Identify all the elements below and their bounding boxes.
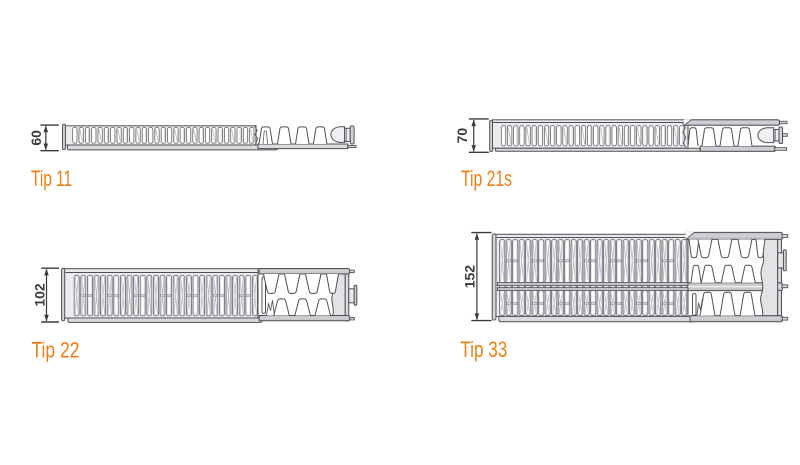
svg-text:Tip 21s: Tip 21s bbox=[461, 166, 512, 191]
svg-text:Tip 33: Tip 33 bbox=[460, 337, 507, 362]
svg-text:Tip 22: Tip 22 bbox=[32, 338, 80, 363]
svg-text:Tip 11: Tip 11 bbox=[31, 166, 72, 191]
svg-text:102: 102 bbox=[32, 283, 48, 307]
svg-text:152: 152 bbox=[461, 265, 477, 289]
svg-text:60: 60 bbox=[28, 130, 44, 146]
svg-text:70: 70 bbox=[454, 128, 470, 144]
